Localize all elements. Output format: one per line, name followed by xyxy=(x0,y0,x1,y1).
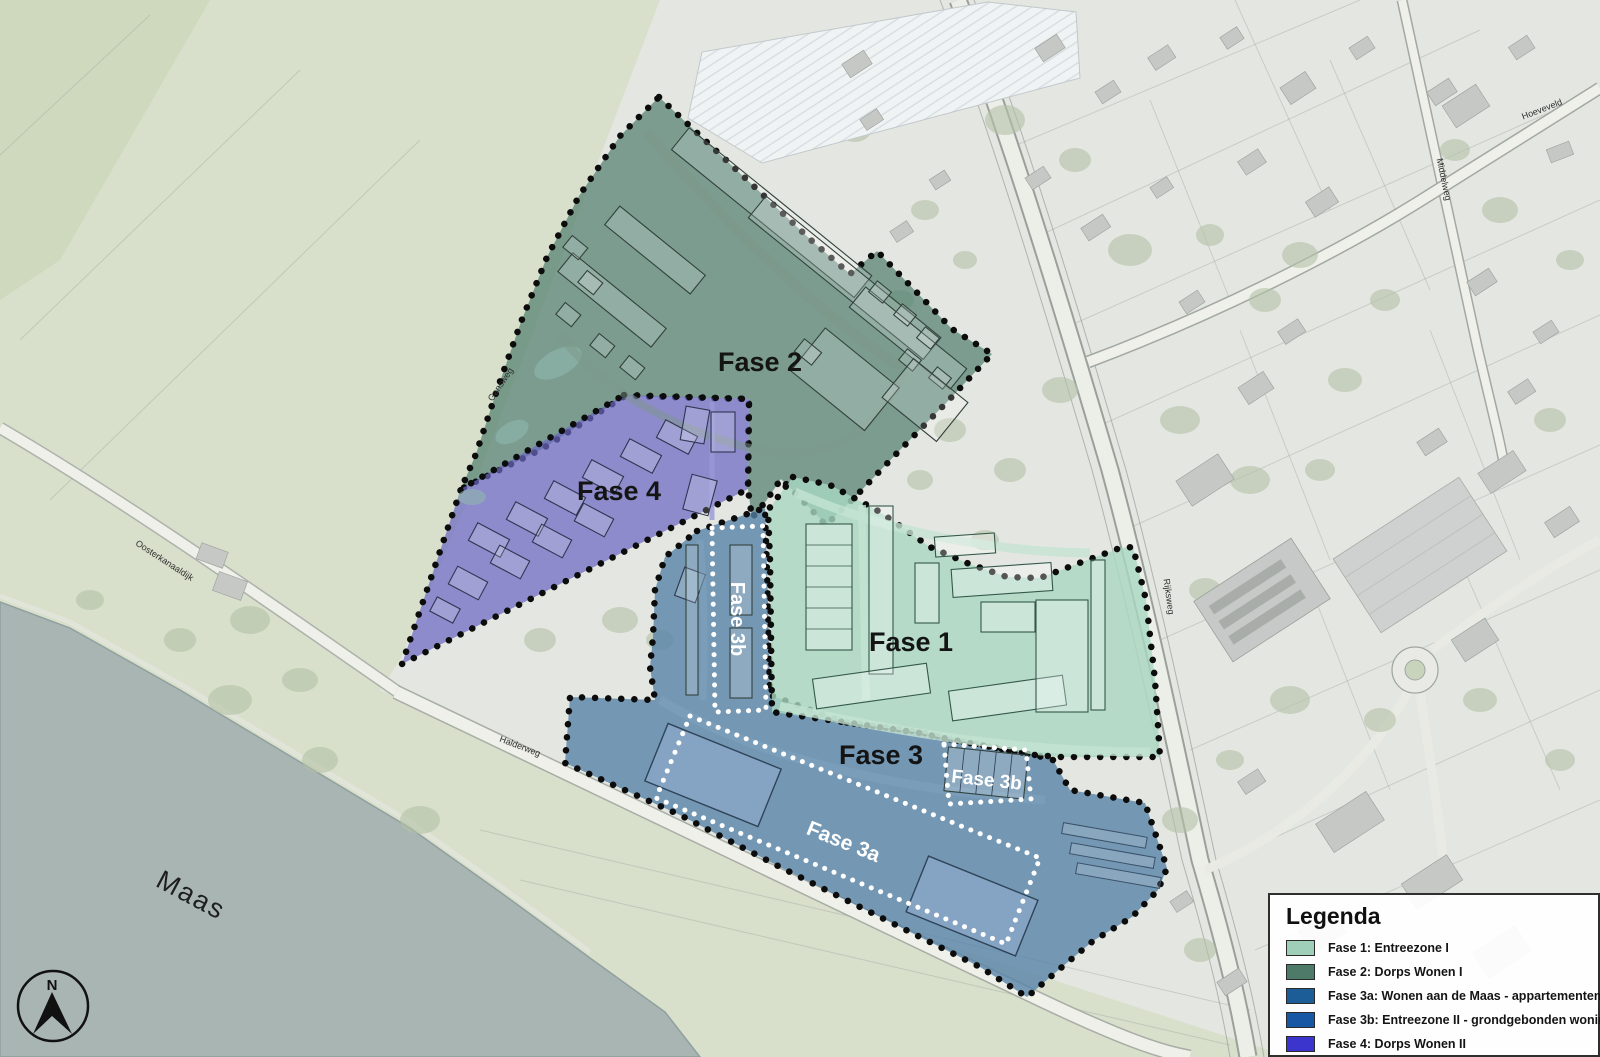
fase1-label: Fase 1 xyxy=(869,627,953,657)
fase4-label: Fase 4 xyxy=(577,476,661,506)
fase4-swatch xyxy=(1286,1036,1315,1052)
compass-n: N xyxy=(47,977,58,994)
legend-item-fase3a: Fase 3a: Wonen aan de Maas - appartement… xyxy=(1286,988,1598,1004)
fase3b-legend-label: Fase 3b: Entreezone II - grondgebonden w… xyxy=(1328,1013,1600,1027)
fase3a-swatch xyxy=(1286,988,1315,1004)
legend-item-fase1: Fase 1: Entreezone I xyxy=(1286,940,1598,956)
fase2-legend-label: Fase 2: Dorps Wonen I xyxy=(1328,965,1463,979)
fase1-legend-label: Fase 1: Entreezone I xyxy=(1328,941,1449,955)
fase2-swatch xyxy=(1286,964,1315,980)
legend-item-fase3b: Fase 3b: Entreezone II - grondgebonden w… xyxy=(1286,1012,1598,1028)
legend-title: Legenda xyxy=(1286,903,1598,930)
legend-item-fase4: Fase 4: Dorps Wonen II xyxy=(1286,1036,1598,1052)
fase2-label: Fase 2 xyxy=(718,347,802,377)
fase3-label: Fase 3 xyxy=(839,740,923,770)
fase4-legend-label: Fase 4: Dorps Wonen II xyxy=(1328,1037,1466,1051)
legend-item-fase2: Fase 2: Dorps Wonen I xyxy=(1286,964,1598,980)
masterplan-map: Fase 2 Fase 4 Fase 1 Fase 3 Fase 3a Fase… xyxy=(0,0,1600,1057)
legend-panel: Legenda Fase 1: Entreezone I Fase 2: Dor… xyxy=(1268,893,1600,1057)
fase3a-legend-label: Fase 3a: Wonen aan de Maas - appartement… xyxy=(1328,989,1600,1003)
fase3b-north-label: Fase 3b xyxy=(726,582,748,656)
fase3b-swatch xyxy=(1286,1012,1315,1028)
fase1-swatch xyxy=(1286,940,1315,956)
